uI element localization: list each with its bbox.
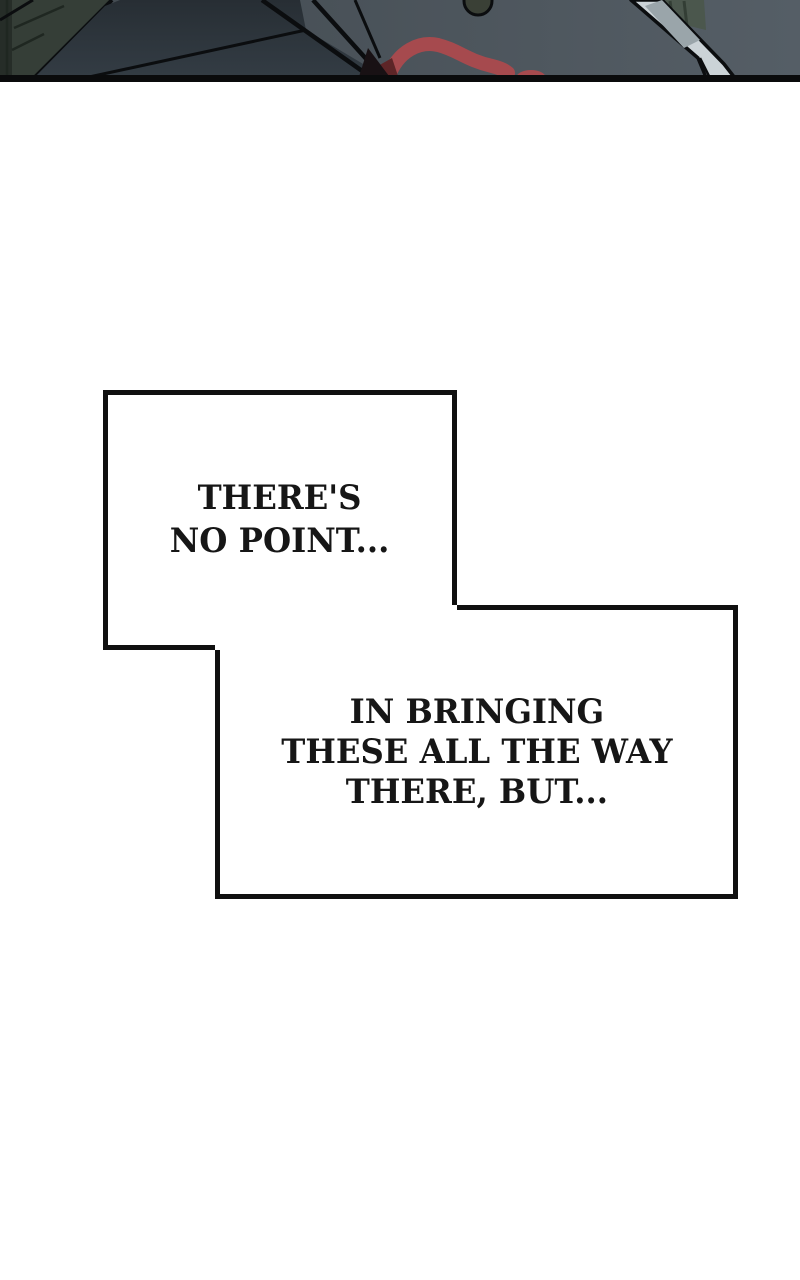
speech-line: THERE'S <box>170 477 390 520</box>
speech-text-2: IN BRINGING THESE ALL THE WAY THERE, BUT… <box>281 692 672 812</box>
speech-line: NO POINT... <box>170 520 390 563</box>
knob <box>464 0 492 15</box>
webtoon-page: THERE'S NO POINT... IN BRINGING THESE AL… <box>0 0 800 1280</box>
speech-line: THESE ALL THE WAY <box>281 732 672 772</box>
comic-panel-artwork <box>0 0 800 82</box>
speech-text-1: THERE'S NO POINT... <box>170 477 390 563</box>
speech-line: IN BRINGING <box>281 692 672 732</box>
bubble-join-patch <box>215 605 457 650</box>
speech-line: THERE, BUT... <box>281 772 672 812</box>
panel-border-band <box>0 75 800 82</box>
